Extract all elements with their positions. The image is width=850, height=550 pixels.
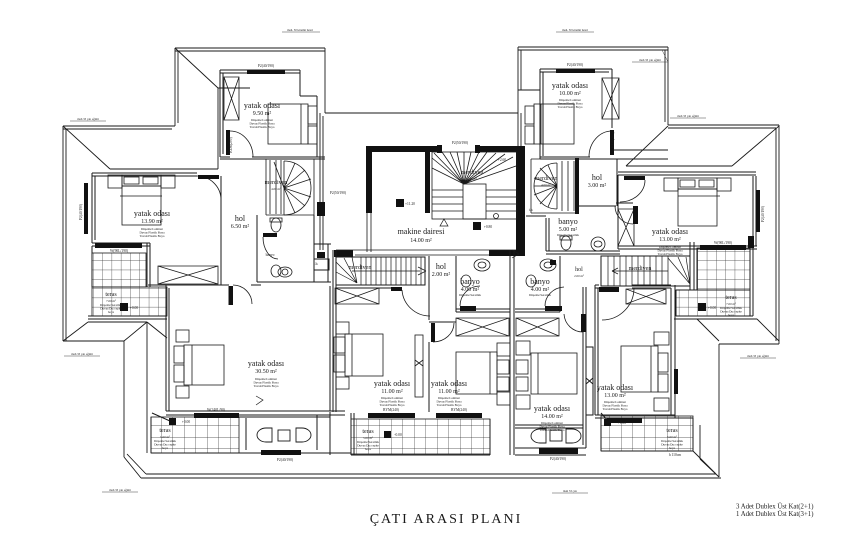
svg-text:banyo: banyo: [558, 217, 578, 226]
svg-text:+0.00: +0.00: [130, 306, 139, 310]
svg-text:10.00 m²: 10.00 m²: [559, 91, 581, 97]
svg-text:+0.80: +0.80: [484, 225, 493, 229]
svg-text:banyo: banyo: [460, 277, 480, 286]
svg-text:mah. 50 kiremit üzeri: mah. 50 kiremit üzeri: [287, 28, 313, 32]
svg-text:merdiven: merdiven: [629, 266, 652, 272]
svg-text:yatak odası: yatak odası: [652, 227, 689, 236]
svg-text:mah 33 çatı eğimi: mah 33 çatı eğimi: [677, 114, 699, 118]
svg-text:hol: hol: [436, 262, 447, 271]
svg-text:Düşeme:Seramik: Düşeme:Seramik: [529, 293, 551, 297]
svg-text:P2(40/190): P2(40/190): [79, 203, 83, 220]
svg-text:W(90L/190): W(90L/190): [714, 241, 733, 245]
svg-text:hol: hol: [235, 214, 246, 223]
svg-text:Tavan:Plastik Boya: Tavan:Plastik Boya: [437, 403, 462, 407]
svg-text:boya: boya: [669, 446, 676, 450]
svg-text:boya: boya: [162, 446, 169, 450]
svg-text:yatak odası: yatak odası: [431, 379, 468, 388]
svg-text:-0.00: -0.00: [394, 433, 402, 437]
svg-text:9.50 m²: 9.50 m²: [253, 111, 272, 117]
svg-text:boya: boya: [365, 447, 372, 451]
svg-text:makine dairesi: makine dairesi: [398, 227, 446, 236]
svg-text:Tavan:Plastik Boya: Tavan:Plastik Boya: [540, 428, 565, 432]
svg-text:W(90L/190): W(90L/190): [110, 249, 129, 253]
svg-text:yatak odası: yatak odası: [248, 359, 285, 368]
svg-text:+11.20: +11.20: [405, 202, 415, 206]
svg-text:2.00 m²: 2.00 m²: [574, 274, 584, 278]
svg-text:mah 33 çatı eğimi: mah 33 çatı eğimi: [71, 352, 93, 356]
svg-text:Tavan:Plastik Boya: Tavan:Plastik Boya: [558, 105, 583, 109]
svg-text:yatak odası: yatak odası: [244, 101, 281, 110]
svg-text:yatak odası: yatak odası: [534, 404, 571, 413]
svg-text:P2(40/190): P2(40/190): [258, 64, 275, 68]
svg-text:P2(50/190): P2(50/190): [330, 191, 347, 195]
svg-text:t.b.: t.b.: [529, 208, 534, 212]
svg-text:banyo: banyo: [530, 277, 550, 286]
svg-text:mah 33 çatı eğimi: mah 33 çatı eğimi: [747, 354, 769, 358]
svg-text:merdiven: merdiven: [535, 176, 558, 182]
svg-text:Tavan:Plastik Boya: Tavan:Plastik Boya: [140, 234, 165, 238]
svg-text:+0.00: +0.00: [182, 420, 191, 424]
svg-text:+0.00: +0.00: [618, 421, 627, 425]
svg-text:Tavan:Plastik Boya: Tavan:Plastik Boya: [254, 384, 279, 388]
svg-text:14.00 m²: 14.00 m²: [410, 238, 432, 244]
svg-text:h 110cm: h 110cm: [669, 453, 682, 457]
svg-text:teras: teras: [159, 428, 171, 434]
svg-text:Tavan:Plastik Boya: Tavan:Plastik Boya: [250, 125, 275, 129]
svg-text:4.00 m²: 4.00 m²: [541, 183, 551, 187]
svg-text:BYM(240): BYM(240): [451, 408, 468, 412]
svg-text:teras: teras: [362, 429, 374, 435]
svg-text:hol: hol: [575, 267, 583, 273]
svg-text:KOR(200): KOR(200): [611, 132, 615, 148]
svg-text:13.00 m²: 13.00 m²: [604, 393, 626, 399]
svg-text:14.00 m²: 14.00 m²: [541, 414, 563, 420]
svg-text:teras: teras: [725, 295, 737, 301]
svg-text:Düşeme:Seramik: Düşeme:Seramik: [459, 293, 481, 297]
svg-text:+0.00: +0.00: [708, 306, 717, 310]
svg-text:P2(50/190): P2(50/190): [452, 141, 469, 145]
svg-text:+2.60: +2.60: [498, 158, 507, 162]
svg-text:Tavan:Plastik Boya: Tavan:Plastik Boya: [658, 252, 683, 256]
svg-text:P2(40/190): P2(40/190): [550, 457, 567, 461]
svg-text:P2(40/190): P2(40/190): [567, 63, 584, 67]
svg-text:hol: hol: [592, 173, 603, 182]
svg-text:ÇATI ARASI PLANI: ÇATI ARASI PLANI: [370, 512, 523, 527]
svg-text:13.90 m²: 13.90 m²: [141, 219, 163, 225]
svg-text:teras: teras: [105, 292, 117, 298]
svg-text:mah 33 çatı eğimi: mah 33 çatı eğimi: [77, 117, 99, 121]
svg-text:t.b.: t.b.: [314, 262, 319, 266]
svg-text:merdiven: merdiven: [349, 265, 372, 271]
svg-text:Tavan:Plastik Boya: Tavan:Plastik Boya: [603, 407, 628, 411]
svg-text:mah 33 çatı: mah 33 çatı: [563, 489, 577, 493]
svg-text:13.00 m²: 13.00 m²: [659, 237, 681, 243]
svg-text:1 Adet Dublex Üst Kat(3+1): 1 Adet Dublex Üst Kat(3+1): [736, 511, 813, 518]
svg-text:P2(40/190): P2(40/190): [277, 458, 294, 462]
svg-text:boya: boya: [728, 313, 735, 317]
svg-text:3.00 m²: 3.00 m²: [588, 183, 607, 189]
svg-text:boya: boya: [108, 310, 115, 314]
svg-text:merdiven: merdiven: [461, 170, 484, 176]
svg-text:30.50 m²: 30.50 m²: [255, 369, 277, 375]
svg-text:BYM(240): BYM(240): [383, 408, 400, 412]
svg-text:W(240L/90): W(240L/90): [207, 408, 226, 412]
svg-text:4.00 m²: 4.00 m²: [271, 187, 281, 191]
svg-text:Tavan:Plastik Boya: Tavan:Plastik Boya: [380, 403, 405, 407]
svg-text:Düşeme:Seramik: Düşeme:Seramik: [557, 233, 579, 237]
svg-text:yatak odası: yatak odası: [134, 209, 171, 218]
svg-text:KOR(200): KOR(200): [229, 137, 233, 153]
svg-text:yatak odası: yatak odası: [552, 81, 589, 90]
svg-text:P2(40/190): P2(40/190): [761, 205, 765, 222]
svg-text:teras: teras: [666, 428, 678, 434]
svg-text:merdiven: merdiven: [265, 180, 288, 186]
svg-text:2.00 m²: 2.00 m²: [432, 272, 451, 278]
svg-text:3 Adet Dublex Üst Kat(2+1): 3 Adet Dublex Üst Kat(2+1): [736, 504, 813, 511]
svg-text:mah 33 çatı eğimi: mah 33 çatı eğimi: [639, 58, 661, 62]
svg-text:yatak odası: yatak odası: [374, 379, 411, 388]
svg-text:11.00 m²: 11.00 m²: [438, 389, 459, 395]
svg-text:mah. 50 kiremit üzeri: mah. 50 kiremit üzeri: [562, 28, 588, 32]
svg-text:banyo: banyo: [266, 253, 275, 257]
svg-text:6.50 m²: 6.50 m²: [231, 224, 250, 230]
svg-text:mah 33 çatı eğimi: mah 33 çatı eğimi: [109, 488, 131, 492]
svg-text:yatak odası: yatak odası: [597, 383, 634, 392]
svg-text:8.30 m²: 8.30 m²: [467, 177, 477, 181]
svg-text:11.00 m²: 11.00 m²: [381, 389, 402, 395]
